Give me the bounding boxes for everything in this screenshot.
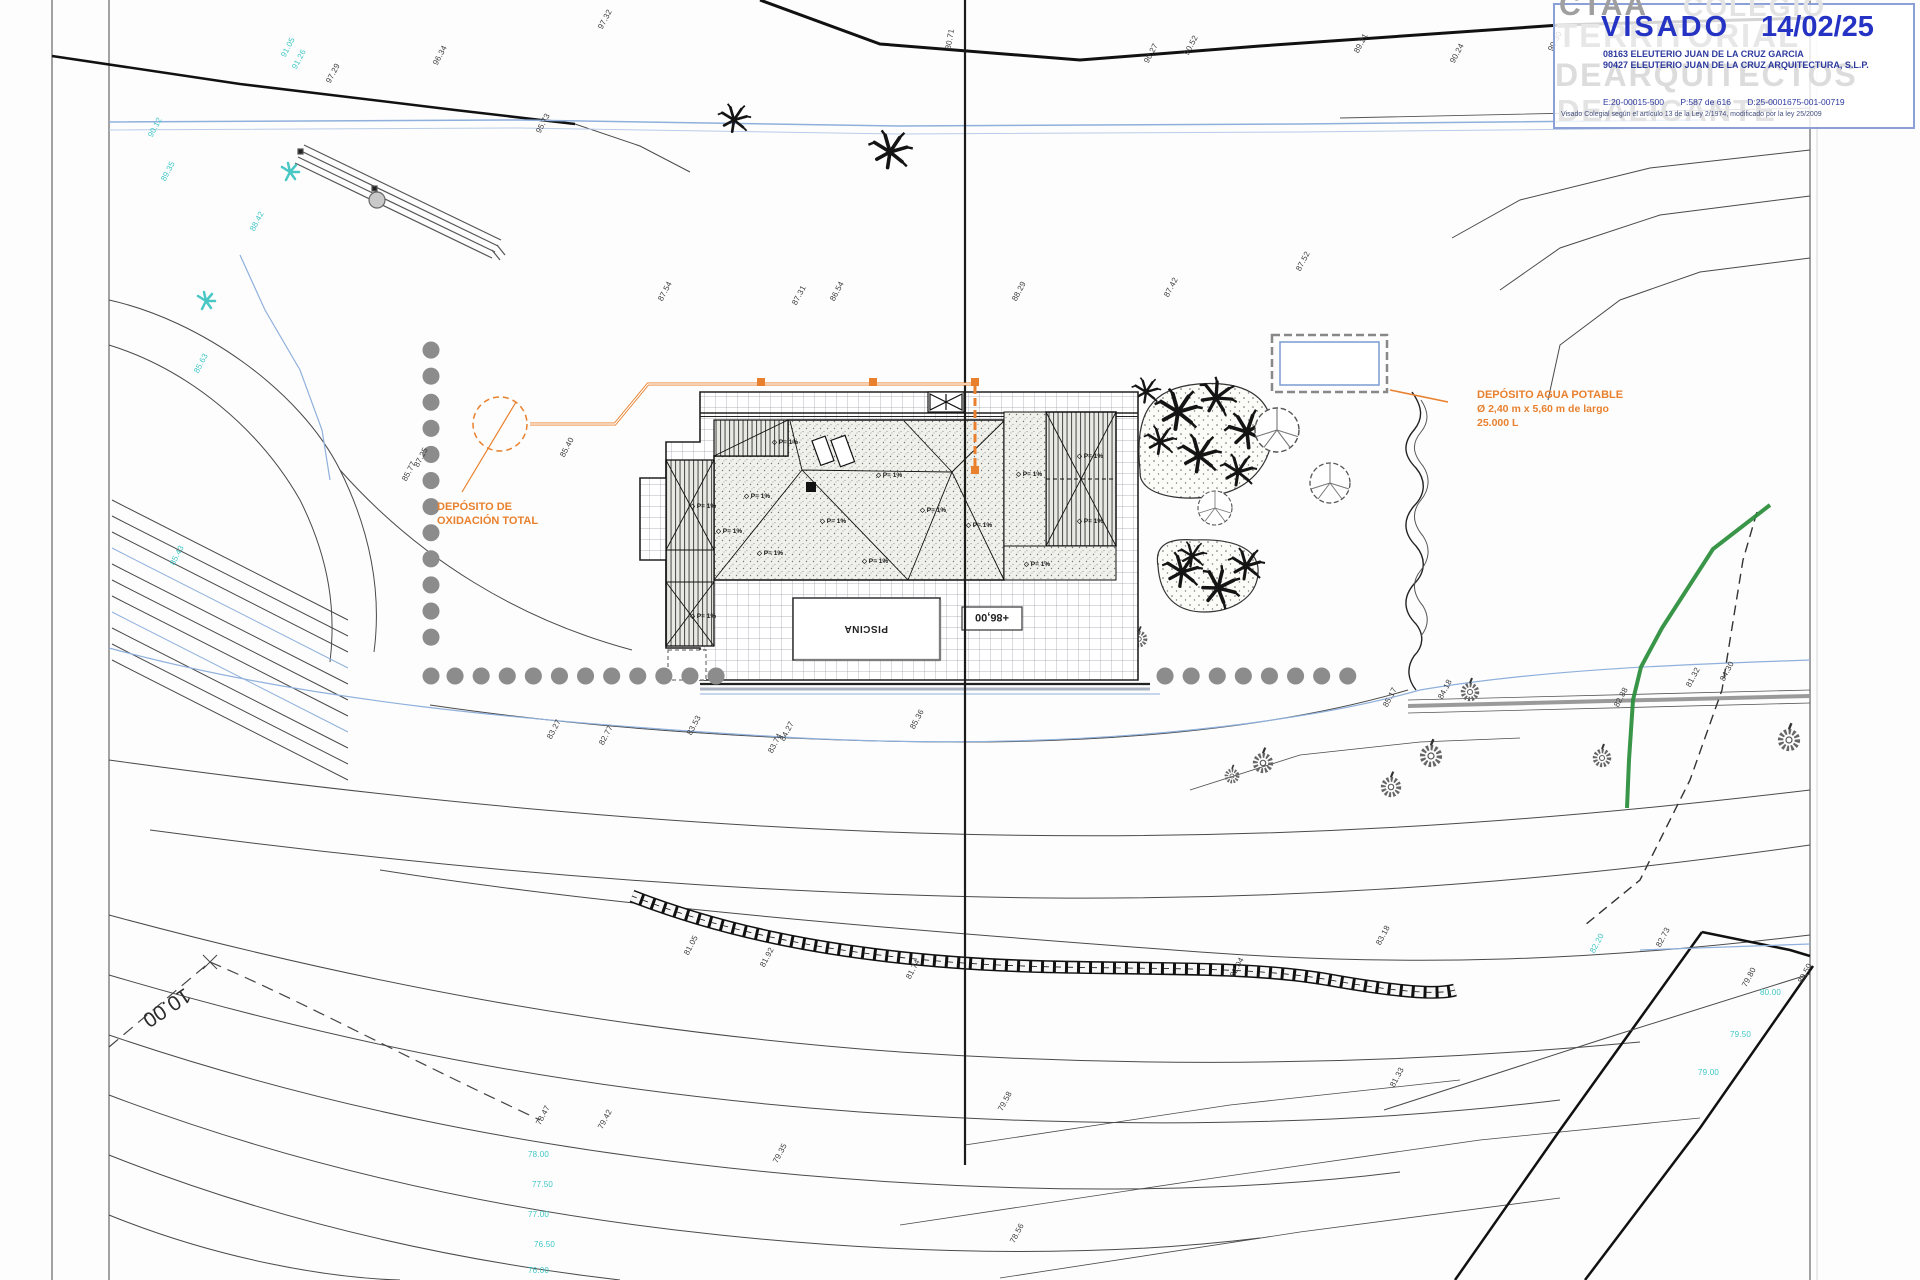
site-plan-drawing: PISCINA +86,00 <box>0 0 1920 1280</box>
shrub-rosette-icon <box>1383 772 1398 795</box>
shrub-rosette-icon <box>1781 723 1798 748</box>
boundary-dimension-line <box>109 955 540 1120</box>
water-tank-label-line3: 25.000 L <box>1477 416 1623 430</box>
roof-hatch <box>806 482 816 492</box>
shrub-rosette-icon <box>1423 739 1440 764</box>
spot-elevation: 79.50 <box>1730 1030 1751 1039</box>
spot-elevation: 79.00 <box>1698 1068 1719 1077</box>
stamp-visado-title: VISADO <box>1601 11 1730 44</box>
roof-slope-marker: ◇ P= 1% <box>820 517 846 525</box>
roof-strip <box>1004 546 1116 580</box>
roof-slope-marker: ◇ P= 1% <box>876 471 902 479</box>
cyan-plant-icon <box>198 292 215 309</box>
roof-slope-marker: ◇ P= 1% <box>690 612 716 620</box>
shrub-rosette-icon <box>1255 748 1270 771</box>
stamp-architect-line2: 90427 ELEUTERIO JUAN DE LA CRUZ ARQUITEC… <box>1603 60 1869 71</box>
roof-slope-marker: ◇ P= 1% <box>690 502 716 510</box>
green-utility-line <box>1627 505 1770 808</box>
oxidation-tank-label: DEPÓSITO DE OXIDACIÓN TOTAL <box>437 500 538 528</box>
spot-elevation: 80.00 <box>1760 988 1781 997</box>
roof-slope-marker: ◇ P= 1% <box>1016 470 1042 478</box>
roof-slope-marker: ◇ P= 1% <box>966 521 992 529</box>
roof-strip <box>1004 412 1046 546</box>
tree-canopy-icon <box>1310 463 1350 503</box>
roof-slope-marker: ◇ P= 1% <box>772 438 798 446</box>
roof-slope-marker: ◇ P= 1% <box>1077 517 1103 525</box>
roof-slope-marker: ◇ P= 1% <box>716 527 742 535</box>
spot-elevation: 77.50 <box>532 1180 553 1189</box>
spot-elevation: 76.50 <box>534 1240 555 1249</box>
spot-elevation: 76.00 <box>528 1266 549 1275</box>
tree-canopy-icon <box>1255 408 1299 452</box>
water-tank-label-line2: Ø 2,40 m x 5,60 m de largo <box>1477 402 1623 416</box>
water-tank-label: DEPÓSITO AGUA POTABLE Ø 2,40 m x 5,60 m … <box>1477 388 1623 430</box>
water-tank-label-line1: DEPÓSITO AGUA POTABLE <box>1477 388 1623 402</box>
stamp-code-e: E:20-00015-500 <box>1603 97 1664 107</box>
palm-icon <box>868 130 912 167</box>
shrub-rosette-icon <box>1463 678 1477 699</box>
roof-vent <box>928 392 964 412</box>
roof-slope-marker: ◇ P= 1% <box>1077 452 1103 460</box>
visado-stamp: CTAA COLEGIO TERRITORIAL DEARQUITECTOS D… <box>1553 3 1915 129</box>
shrub-rosette-icon <box>1226 765 1237 782</box>
stamp-codes: E:20-00015-500 P:587 de 616 D:25-0001675… <box>1603 97 1859 107</box>
spot-elevation: 78.00 <box>528 1150 549 1159</box>
rock-feature <box>1406 392 1428 690</box>
site-plan-sheet: PISCINA +86,00 97.2996.3495.7397.3290.12… <box>0 0 1920 1280</box>
oxidation-tank-label-line2: OXIDACIÓN TOTAL <box>437 514 538 528</box>
pool-label: PISCINA <box>844 623 888 634</box>
roof-slope-marker: ◇ P= 1% <box>920 506 946 514</box>
stamp-date: 14/02/25 <box>1761 11 1874 44</box>
slope-hatch-fan <box>112 500 348 780</box>
roof-slope-marker: ◇ P= 1% <box>744 492 770 500</box>
shrub-rosette-icon <box>1595 744 1609 765</box>
building-terrace: PISCINA +86,00 <box>640 392 1160 694</box>
roof-slope-marker: ◇ P= 1% <box>757 549 783 557</box>
oxidation-tank-symbol <box>473 397 527 451</box>
stamp-code-d: D:25-0001675-001-00719 <box>1747 97 1844 107</box>
stamp-code-p: P:587 de 616 <box>1680 97 1731 107</box>
water-tank <box>1272 335 1387 392</box>
terrace-level-label: +86,00 <box>975 611 1009 623</box>
stone-wall <box>632 896 1455 992</box>
oxidation-tank-label-line1: DEPÓSITO DE <box>437 500 538 514</box>
spot-elevation: 77.00 <box>528 1210 549 1219</box>
stamp-architect-lines: 08163 ELEUTERIO JUAN DE LA CRUZ GARCIA 9… <box>1603 49 1869 71</box>
roof-slope-marker: ◇ P= 1% <box>1024 560 1050 568</box>
tree-canopy-icon <box>1198 491 1232 525</box>
stamp-architect-line1: 08163 ELEUTERIO JUAN DE LA CRUZ GARCIA <box>1603 49 1869 60</box>
stamp-footnote: Visado Colegial según el artículo 13 de … <box>1561 111 1822 118</box>
water-tank-leader <box>1390 390 1448 402</box>
roof-slope-marker: ◇ P= 1% <box>862 557 888 565</box>
cyan-plant-icon <box>282 163 299 180</box>
stepped-path <box>295 145 505 260</box>
palm-icon <box>718 104 751 132</box>
